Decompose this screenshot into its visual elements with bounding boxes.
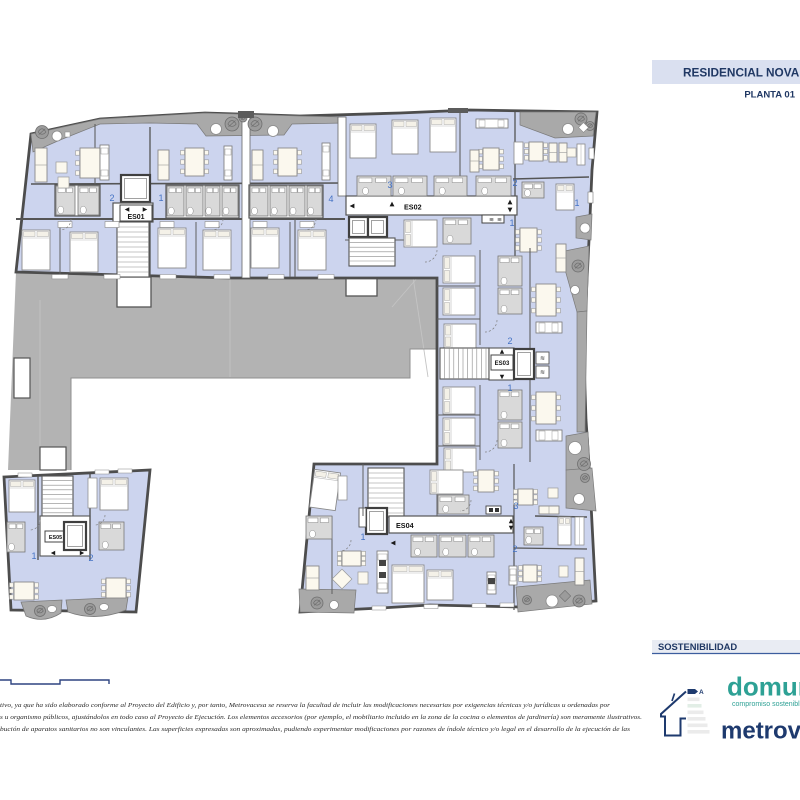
svg-text:1: 1: [507, 383, 512, 393]
svg-text:3: 3: [513, 501, 518, 511]
svg-text:≋: ≋: [489, 218, 494, 224]
svg-text:2: 2: [88, 553, 93, 563]
svg-text:PLANTA 01: PLANTA 01: [744, 90, 795, 101]
svg-text:3: 3: [387, 180, 392, 190]
svg-text:1: 1: [158, 193, 163, 203]
svg-text:tivo, ya que ha sido elaborado: tivo, ya que ha sido elaborado conforme …: [0, 702, 611, 709]
svg-text:1: 1: [360, 532, 365, 542]
svg-text:domum: domum: [727, 672, 800, 702]
svg-text:SOSTENIBILIDAD: SOSTENIBILIDAD: [658, 641, 737, 652]
svg-text:≋: ≋: [540, 370, 545, 376]
svg-text:ES02: ES02: [404, 203, 422, 212]
svg-text:ES04: ES04: [396, 521, 414, 530]
svg-text:ES03: ES03: [495, 361, 510, 367]
svg-text:2: 2: [109, 193, 114, 203]
svg-text:≋: ≋: [540, 356, 545, 362]
svg-text:ES01: ES01: [127, 214, 144, 221]
svg-text:1: 1: [31, 551, 36, 561]
svg-text:4: 4: [328, 194, 333, 204]
svg-text:2: 2: [512, 544, 517, 554]
svg-text:s u organismo públicos, ajustá: s u organismo públicos, ajustándolos en …: [0, 714, 642, 721]
svg-text:RESIDENCIAL NOVAMAR: RESIDENCIAL NOVAMAR: [683, 66, 800, 80]
svg-text:≋: ≋: [497, 218, 502, 224]
svg-text:A: A: [699, 689, 704, 696]
svg-text:metrovacesa: metrovacesa: [721, 718, 800, 745]
svg-text:1: 1: [574, 198, 579, 208]
svg-text:2: 2: [512, 178, 517, 188]
svg-text:ES05: ES05: [49, 535, 62, 541]
svg-text:1: 1: [509, 218, 514, 228]
svg-text:compromiso sostenible: compromiso sostenible: [732, 701, 800, 708]
svg-text:bución de aparatos sanitarios: bución de aparatos sanitarios no son vin…: [0, 726, 631, 733]
svg-text:2: 2: [507, 336, 512, 346]
